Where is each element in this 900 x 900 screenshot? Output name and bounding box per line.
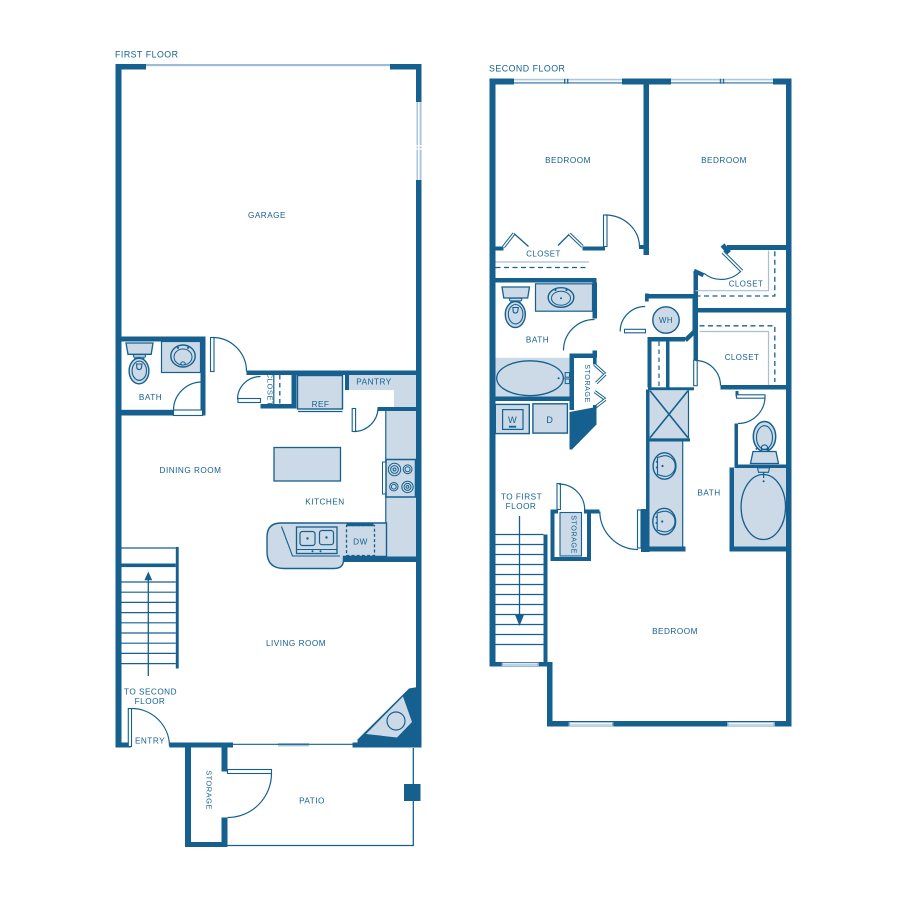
svg-text:STORAGE: STORAGE (569, 515, 578, 554)
svg-text:FLOOR: FLOOR (506, 502, 537, 511)
svg-text:BATH: BATH (139, 393, 162, 402)
svg-text:KITCHEN: KITCHEN (305, 498, 344, 507)
svg-text:DW: DW (353, 538, 368, 547)
svg-text:W: W (508, 415, 517, 425)
svg-text:REF: REF (312, 400, 330, 409)
svg-text:LIVING ROOM: LIVING ROOM (266, 639, 326, 648)
svg-text:WH: WH (659, 316, 673, 325)
svg-text:CLOSET: CLOSET (725, 353, 760, 362)
svg-text:SECOND FLOOR: SECOND FLOOR (489, 64, 565, 74)
svg-text:CLOSET: CLOSET (526, 250, 561, 259)
svg-text:ENTRY: ENTRY (135, 737, 165, 746)
svg-text:BATH: BATH (526, 336, 549, 345)
svg-text:STORAGE: STORAGE (205, 770, 214, 810)
svg-text:CLOSET: CLOSET (729, 280, 764, 289)
svg-text:BEDROOM: BEDROOM (701, 156, 747, 165)
svg-text:PANTRY: PANTRY (356, 378, 391, 387)
svg-text:STORAGE: STORAGE (583, 364, 592, 403)
svg-text:FLOOR: FLOOR (135, 697, 166, 706)
svg-text:PATIO: PATIO (299, 797, 325, 806)
svg-text:FIRST FLOOR: FIRST FLOOR (115, 50, 179, 60)
svg-text:BEDROOM: BEDROOM (545, 156, 591, 165)
svg-text:TO FIRST: TO FIRST (501, 493, 542, 502)
svg-text:CLOSET: CLOSET (265, 373, 274, 407)
svg-text:TO SECOND: TO SECOND (124, 688, 177, 697)
svg-text:GARAGE: GARAGE (248, 211, 286, 220)
svg-text:BATH: BATH (697, 489, 720, 498)
svg-text:D: D (546, 415, 553, 425)
svg-text:BEDROOM: BEDROOM (652, 627, 698, 636)
svg-text:DINING ROOM: DINING ROOM (160, 466, 222, 475)
